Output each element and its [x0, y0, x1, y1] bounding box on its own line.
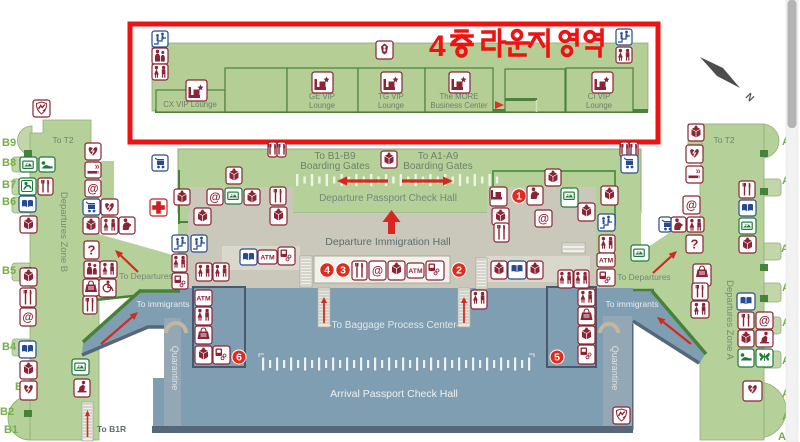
svg-text:@: @: [759, 315, 770, 327]
svg-text:zz: zz: [637, 249, 641, 253]
svg-text:4: 4: [429, 30, 446, 63]
svg-text:ATM: ATM: [196, 295, 211, 302]
svg-text:ATM: ATM: [260, 254, 275, 261]
svg-text:6: 6: [236, 352, 242, 364]
svg-text:@: @: [686, 200, 697, 212]
svg-text:Boarding Gates: Boarding Gates: [300, 161, 370, 172]
svg-text:––To Baggage Process Center––: ––To Baggage Process Center––: [320, 320, 468, 331]
svg-text:Departure Passport Check Hall: Departure Passport Check Hall: [319, 193, 457, 204]
svg-text:Departures Zone A: Departures Zone A: [724, 280, 735, 360]
svg-text:ATM: ATM: [599, 257, 614, 264]
svg-text:Departure Immigration Hall: Departure Immigration Hall: [325, 236, 450, 248]
svg-text:B7: B7: [2, 179, 16, 191]
svg-text:ATM: ATM: [408, 268, 423, 275]
svg-text:@: @: [538, 213, 549, 225]
svg-text:Lounge: Lounge: [309, 101, 335, 110]
svg-text:zz: zz: [567, 192, 571, 196]
svg-text:?: ?: [88, 243, 96, 258]
svg-text:zz: zz: [231, 192, 235, 196]
svg-text:@: @: [372, 265, 383, 277]
svg-text:B6: B6: [2, 196, 16, 208]
svg-text:Quarantine: Quarantine: [610, 346, 620, 391]
svg-text:B5: B5: [2, 265, 16, 277]
svg-text:B2: B2: [0, 406, 14, 418]
svg-text:2: 2: [456, 265, 462, 277]
svg-text:Arrival Passport Check Hall: Arrival Passport Check Hall: [330, 388, 458, 400]
svg-text:To B1R: To B1R: [97, 424, 126, 434]
svg-text:Business Center: Business Center: [430, 101, 488, 110]
svg-text:zz: zz: [26, 161, 30, 165]
svg-text:@: @: [209, 192, 220, 204]
svg-text:Departures Zone B: Departures Zone B: [58, 192, 69, 272]
svg-text:B4: B4: [2, 341, 17, 353]
svg-text:@: @: [87, 183, 98, 195]
svg-text:B1: B1: [4, 424, 18, 436]
svg-text:B8: B8: [2, 157, 16, 169]
svg-text:Boarding Gates: Boarding Gates: [403, 161, 473, 172]
svg-text:To Departures: To Departures: [119, 271, 172, 281]
svg-text:@: @: [22, 312, 33, 324]
svg-text:zz: zz: [745, 222, 749, 226]
svg-text:To immigrants: To immigrants: [606, 299, 659, 309]
svg-text:1: 1: [516, 191, 522, 203]
svg-text:To T2: To T2: [52, 135, 73, 145]
svg-text:B9: B9: [2, 137, 16, 149]
svg-text:zz: zz: [78, 363, 82, 367]
svg-text:3: 3: [340, 265, 346, 277]
svg-text:To T2: To T2: [713, 135, 734, 145]
svg-text:Lounge: Lounge: [378, 101, 404, 110]
svg-text:5: 5: [554, 352, 560, 364]
svg-text:Lounge: Lounge: [586, 101, 612, 110]
svg-text:Quarantine: Quarantine: [170, 346, 180, 391]
svg-text:To Departures: To Departures: [617, 272, 670, 282]
svg-text:4: 4: [324, 265, 330, 277]
svg-text:?: ?: [691, 237, 699, 252]
svg-text:To immigrants: To immigrants: [137, 299, 190, 309]
